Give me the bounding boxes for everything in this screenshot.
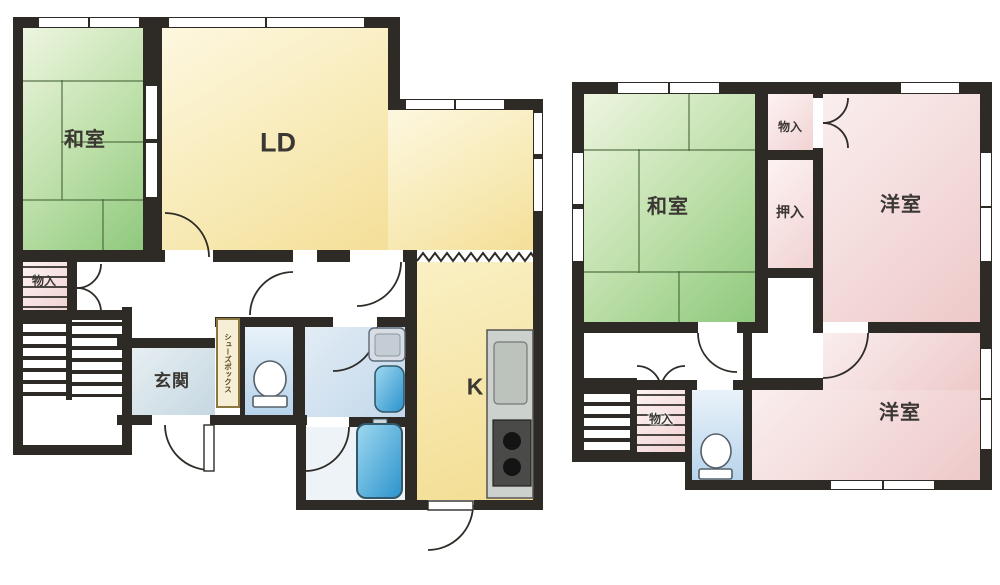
door-arc-storage-1f-upper — [77, 264, 101, 288]
wall — [117, 338, 215, 348]
window — [900, 82, 960, 94]
window — [572, 152, 584, 205]
wall — [296, 425, 306, 510]
wall — [768, 150, 813, 160]
wall — [122, 307, 132, 455]
wall — [572, 378, 637, 390]
window-mullion — [980, 206, 992, 208]
window-mullion — [882, 480, 884, 490]
wall — [405, 262, 417, 510]
wall — [572, 82, 584, 462]
label-storage-1f: 物入 — [32, 275, 56, 287]
wall — [117, 415, 152, 425]
room-living-dining-east — [388, 110, 533, 250]
wall — [474, 500, 543, 510]
tatami-line — [23, 199, 143, 201]
wall — [317, 250, 350, 262]
accordion-partition — [417, 253, 535, 261]
entrance-door-leaf — [204, 425, 214, 471]
wall — [630, 378, 637, 462]
door-arc-kitchen-back — [428, 505, 473, 550]
wall — [813, 82, 823, 98]
tatami-line — [102, 199, 104, 250]
room-western-lower — [752, 390, 980, 480]
sliding-door-leaf — [145, 142, 158, 198]
wall — [13, 445, 132, 455]
tatami-line — [584, 271, 755, 273]
room-washroom — [305, 327, 405, 417]
window-mullion — [265, 17, 267, 28]
wall — [692, 380, 697, 390]
room-western-lower-entry — [823, 333, 980, 390]
door-arc-hall-kitchen — [357, 262, 401, 306]
wall — [349, 417, 405, 427]
staircase-1f-left — [23, 320, 66, 402]
window — [533, 112, 543, 155]
wall — [293, 327, 305, 417]
wall — [813, 148, 823, 333]
wall — [868, 322, 980, 333]
label-washitsu-1f: 和室 — [64, 130, 106, 150]
staircase-1f-right — [72, 322, 122, 397]
label-western-upper: 洋室 — [880, 195, 922, 215]
wall — [13, 17, 23, 455]
tatami-line — [688, 94, 690, 151]
door-arc-hall-west — [250, 272, 293, 315]
storage-shelf-stripes-1f — [23, 266, 67, 310]
tatami-line — [61, 80, 63, 200]
tatami-line — [23, 80, 143, 82]
door-arc-washitsu-2f — [698, 333, 737, 372]
wall — [572, 322, 698, 333]
wall — [388, 17, 400, 110]
tatami-line — [584, 149, 755, 151]
label-kitchen: K — [467, 376, 484, 399]
wall — [293, 317, 333, 327]
room-toilet-2f — [692, 390, 743, 480]
staircase-divider — [66, 320, 72, 400]
wall — [743, 333, 752, 490]
label-oshiire: 押入 — [776, 205, 804, 219]
wall — [403, 250, 417, 262]
label-washitsu-2f: 和室 — [647, 197, 689, 217]
staircase-2f — [584, 390, 630, 452]
wall — [13, 310, 122, 320]
sliding-door-leaf — [145, 85, 158, 140]
label-genkan: 玄関 — [154, 373, 190, 390]
wall — [377, 317, 415, 327]
label-ld: LD — [260, 130, 296, 157]
wall — [768, 268, 813, 278]
window-mullion — [454, 99, 456, 110]
wall — [935, 480, 980, 490]
wall — [637, 380, 692, 390]
wall — [685, 380, 692, 490]
wall — [692, 480, 830, 490]
wall — [755, 82, 768, 333]
label-western-lower: 洋室 — [879, 403, 921, 423]
tatami-line — [678, 271, 680, 322]
wall — [210, 415, 307, 425]
window — [533, 158, 543, 212]
shoebox-cabinet: シューズボックス — [216, 318, 240, 408]
room-bathroom — [306, 427, 405, 500]
wall — [743, 378, 823, 390]
wall — [67, 262, 77, 312]
label-storage-2f-top: 物入 — [778, 121, 802, 133]
wall — [13, 250, 165, 262]
window-mullion — [88, 17, 90, 28]
room-toilet-1f — [245, 327, 293, 415]
label-storage-2f-bottom: 物入 — [649, 413, 673, 425]
wall — [737, 322, 768, 333]
window — [572, 208, 584, 262]
door-arc-storage-1f-lower — [77, 288, 101, 312]
wall — [296, 500, 428, 510]
window-mullion — [668, 82, 670, 94]
kitchen-back-door-leaf — [428, 501, 473, 510]
door-arc-entrance — [165, 425, 210, 470]
tatami-line — [638, 149, 640, 273]
wall — [240, 317, 245, 417]
floor-plan: シューズボックス — [0, 0, 1000, 585]
window-mullion — [980, 398, 992, 400]
shoebox-label: シューズボックス — [223, 333, 234, 393]
wall — [213, 250, 293, 262]
